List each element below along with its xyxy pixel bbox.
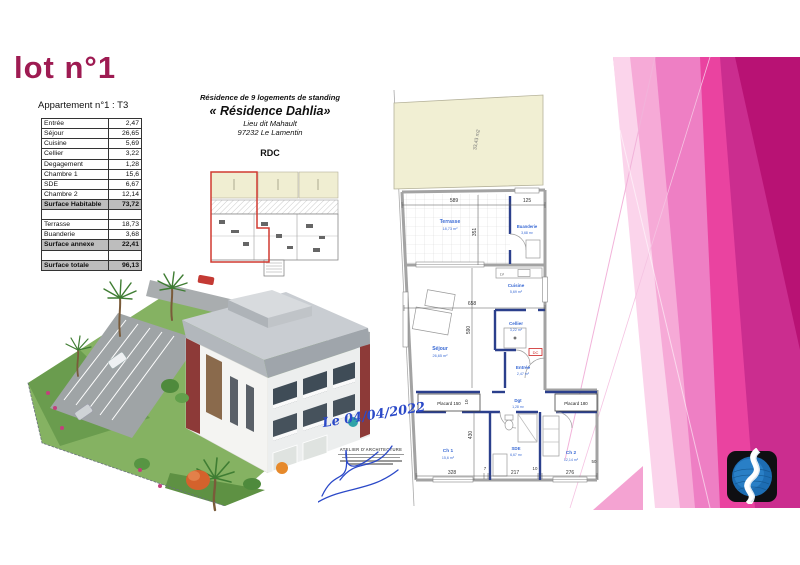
room-label: SDE [42,179,109,189]
apartment-subtitle: Appartement n°1 : T3 [38,100,128,111]
dim-590: 590 [466,326,472,335]
dim-10-bottom: 10 [533,466,538,471]
signature [318,438,418,508]
ch2-area: 12,14 m² [564,458,579,462]
page-title: lot n°1 [14,50,116,86]
project-city: 97232 Le Lamentin [178,128,362,137]
dim-125: 125 [523,198,532,204]
room-area: 3,22 [109,149,142,159]
table-row: Chambre 115,6 [42,169,142,179]
room-area: 18,73 [109,220,142,230]
room-label: Chambre 1 [42,169,109,179]
sejour-label: Séjour [432,346,448,352]
table-row: Chambre 212,14 [42,189,142,199]
ch1-label: Ch 1 [443,448,454,454]
total-value: 22,41 [109,240,142,250]
total-label: Surface annexe [42,240,109,250]
placard-left-label: Placard 150 [437,401,461,406]
sde-label: SDE [511,446,520,451]
project-tagline: Résidence de 9 logements de standing [178,93,362,102]
table-row: Entrée2,47 [42,119,142,129]
terrasse-area: 18,73 m² [443,227,459,231]
table-row: Degagement1,28 [42,159,142,169]
room-area: 2,47 [109,119,142,129]
key-plan-gardens [211,172,338,198]
room-area: 6,67 [109,179,142,189]
entree-area: 2,47 m² [517,372,530,376]
dim-50: 50 [592,459,597,464]
table-row: SDE6,67 [42,179,142,189]
dim-430: 430 [468,431,474,440]
dim-217: 217 [511,470,520,476]
entree-label: Entrée [516,365,531,370]
placard-right-label: Placard 180 [564,401,588,406]
dim-328: 328 [448,470,457,476]
globe-swirl-logo [726,448,778,504]
table-row: Séjour26,65 [42,129,142,139]
cellier-label: Cellier [509,321,523,326]
room-label: Séjour [42,129,109,139]
table-row: Buanderie3,68 [42,230,142,240]
cellier-area: 3,22 m² [510,328,523,332]
table-row-spacer [42,210,142,220]
dim-7: 7 [484,466,487,471]
total-label: Surface Habitable [42,200,109,210]
ch1-area: 15,6 m² [442,456,455,460]
table-row: Cuisine5,69 [42,139,142,149]
lv-label: LV [500,273,505,277]
dim-589: 589 [450,198,459,204]
room-label: Degagement [42,159,109,169]
dim-658: 658 [468,301,477,307]
table-row-habitable-total: Surface Habitable73,72 [42,200,142,210]
red-car [197,275,214,286]
project-place: Lieu dit Mahault [178,119,362,128]
table-row-annexe-total: Surface annexe22,41 [42,240,142,250]
room-label: Cellier [42,149,109,159]
dgt-area: 1,28 m² [512,405,525,409]
floor-plan: 33,43 m2 [388,82,625,510]
room-label: Chambre 2 [42,189,109,199]
room-label: Entrée [42,119,109,129]
room-area: 12,14 [109,189,142,199]
buanderie-label: Buanderie [517,224,538,229]
dc-label: DC [533,350,539,355]
room-area: 5,69 [109,139,142,149]
buanderie-area: 3,68 m² [521,231,534,235]
room-area: 1,28 [109,159,142,169]
sde-area: 6,67 m² [510,453,523,457]
room-area: 3,68 [109,230,142,240]
dim-276: 276 [566,470,575,476]
dgt-label: Dgt [514,398,522,403]
surface-table: Entrée2,47 Séjour26,65 Cuisine5,69 Celli… [41,118,142,271]
ch2-label: Ch 2 [566,450,577,456]
room-area: 26,65 [109,129,142,139]
floor-label: RDC [178,148,362,158]
placards: Placard 150 Placard 180 [418,394,597,411]
room-label: Cuisine [42,139,109,149]
room-label: Terrasse [42,220,109,230]
plan-garden: 33,43 m2 [394,95,543,189]
dim-351: 351 [472,228,478,237]
room-label: Buanderie [42,230,109,240]
table-row: Cellier3,22 [42,149,142,159]
lot-sheet-page: lot n°1 Appartement n°1 : T3 Entrée2,47 … [0,0,800,565]
dim-10-hall: 10 [464,399,469,405]
cuisine-label: Cuisine [508,283,525,288]
project-title-block: Résidence de 9 logements de standing « R… [178,93,362,158]
sejour-area: 26,65 m² [433,354,449,358]
project-name: « Résidence Dahlia» [178,104,362,118]
key-plan-terraces [211,200,338,214]
orange-parasol [276,462,288,474]
total-value: 73,72 [109,200,142,210]
terrasse-label: Terrasse [440,219,461,225]
cuisine-area: 5,69 m² [510,290,523,294]
room-area: 15,6 [109,169,142,179]
fixtures [412,240,559,476]
table-row: Terrasse18,73 [42,220,142,230]
